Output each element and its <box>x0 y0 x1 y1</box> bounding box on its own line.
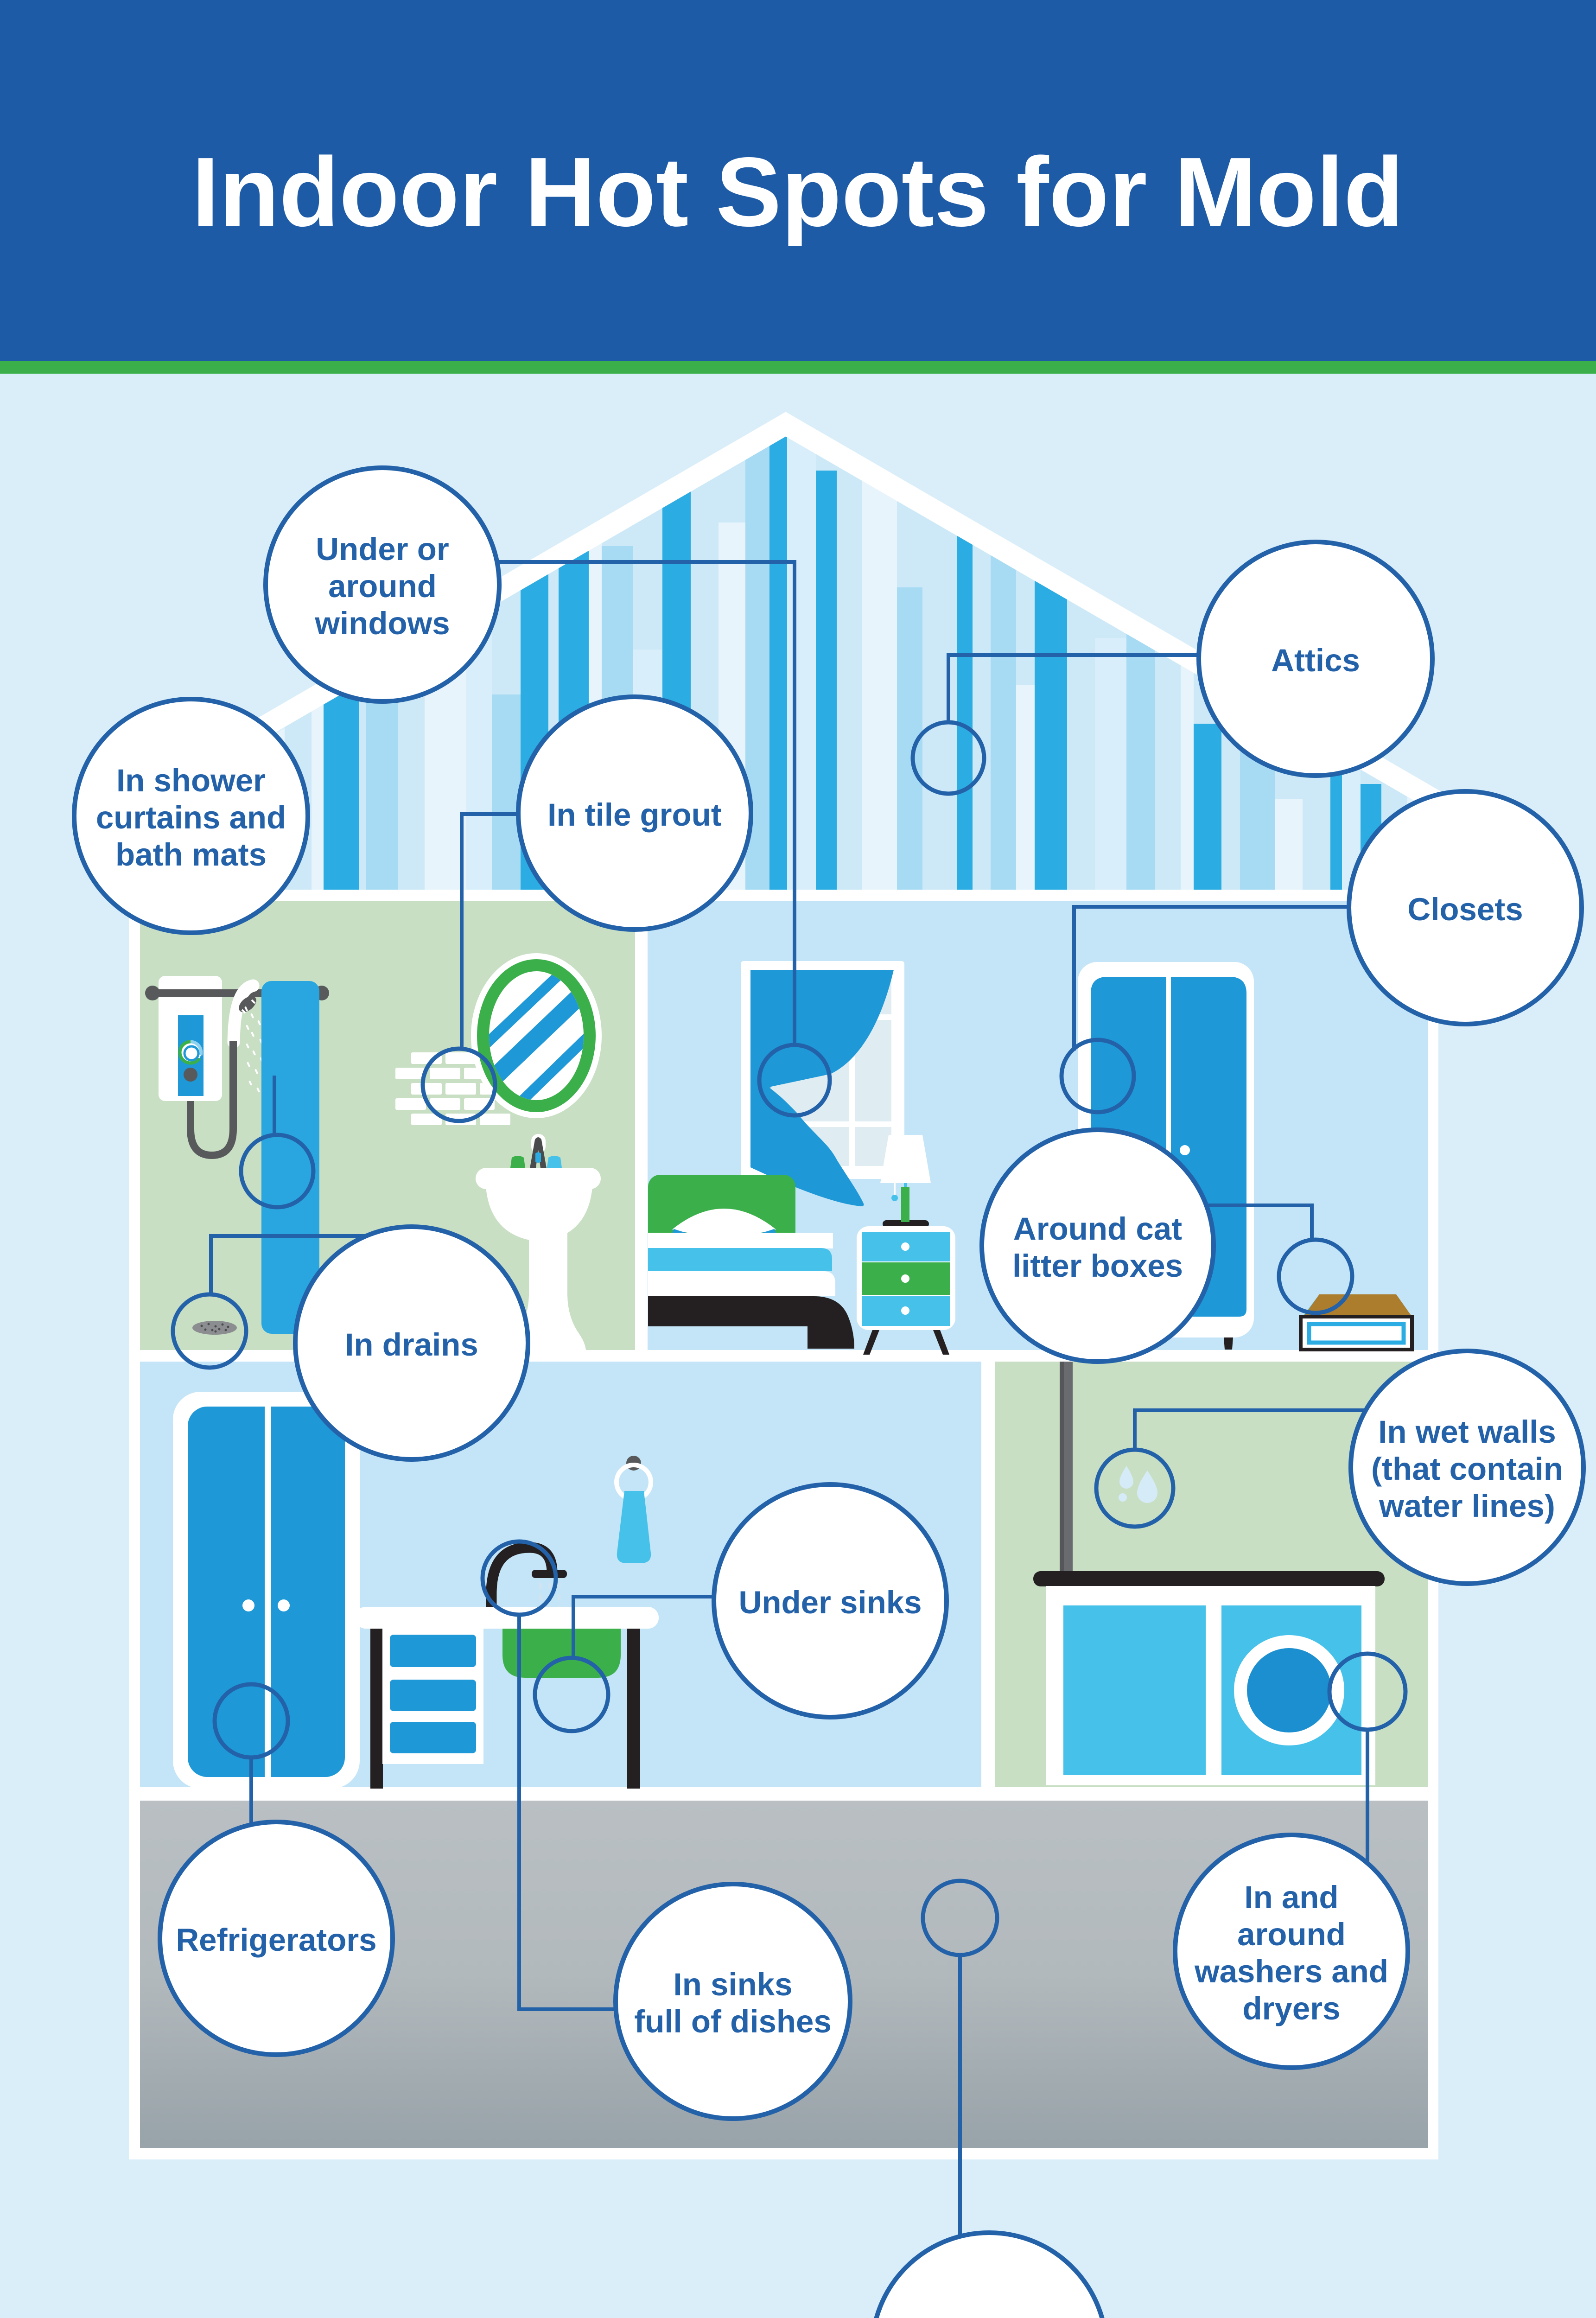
svg-text:Under or: Under or <box>316 531 449 567</box>
svg-text:Refrigerators: Refrigerators <box>176 1922 376 1958</box>
svg-text:Attics: Attics <box>1271 643 1360 678</box>
svg-text:In drains: In drains <box>345 1327 478 1363</box>
svg-text:In wet walls: In wet walls <box>1378 1414 1556 1450</box>
svg-text:In tile grout: In tile grout <box>547 797 722 833</box>
svg-text:litter boxes: litter boxes <box>1012 1248 1183 1284</box>
svg-text:Around cat: Around cat <box>1013 1211 1182 1247</box>
svg-text:bath mats: bath mats <box>115 837 267 872</box>
svg-text:windows: windows <box>314 605 450 641</box>
svg-text:In sinks: In sinks <box>674 1967 793 2002</box>
svg-text:In and: In and <box>1244 1879 1338 1915</box>
svg-text:water lines): water lines) <box>1379 1488 1555 1524</box>
svg-text:In shower: In shower <box>116 763 266 798</box>
svg-text:Under sinks: Under sinks <box>739 1585 922 1620</box>
svg-text:(that contain: (that contain <box>1371 1451 1563 1487</box>
svg-text:Closets: Closets <box>1407 892 1523 927</box>
svg-text:around: around <box>328 568 437 604</box>
svg-text:around: around <box>1237 1917 1346 1952</box>
svg-text:Indoor Hot Spots for Mold: Indoor Hot Spots for Mold <box>192 137 1404 247</box>
svg-text:Basements &: Basements & <box>888 2315 1090 2318</box>
svg-text:washers and: washers and <box>1194 1954 1388 1989</box>
svg-text:dryers: dryers <box>1243 1991 1341 2026</box>
svg-text:full of dishes: full of dishes <box>634 2004 832 2039</box>
svg-text:curtains and: curtains and <box>96 800 286 835</box>
